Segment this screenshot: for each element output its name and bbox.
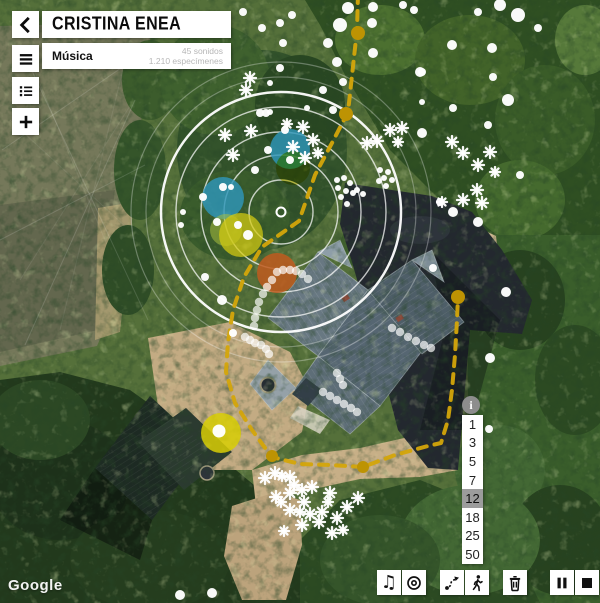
back-button[interactable] [12, 11, 39, 38]
scale-value-18[interactable]: 18 [462, 508, 483, 527]
stop-button[interactable] [575, 570, 599, 595]
walking-person-icon [467, 573, 487, 593]
app: CRISTINA ENEA Música 45 sonidos 1.210 es… [0, 0, 600, 603]
walk-button[interactable] [465, 570, 489, 595]
route-icon [442, 573, 462, 593]
specimen-count: 1.210 especímenes [149, 56, 223, 66]
scale-value-12[interactable]: 12 [462, 489, 483, 508]
chevron-left-icon [15, 14, 37, 36]
scale-value-5[interactable]: 5 [462, 452, 483, 471]
scale-value-3[interactable]: 3 [462, 434, 483, 453]
zoom-scale: 135712182550 [462, 415, 483, 564]
pause-button[interactable] [550, 570, 574, 595]
scale-value-50[interactable]: 50 [462, 545, 483, 564]
sound-count: 45 sonidos [182, 46, 223, 56]
add-button[interactable] [12, 108, 39, 135]
info-button[interactable]: i [462, 396, 480, 414]
target-icon [404, 573, 424, 593]
layer-name: Música [52, 49, 93, 63]
plus-icon [16, 112, 36, 132]
music-button[interactable]: ♫ [377, 570, 401, 595]
target-button[interactable] [402, 570, 426, 595]
satellite-map[interactable] [0, 0, 600, 603]
scale-value-1[interactable]: 1 [462, 415, 483, 434]
trash-button[interactable] [503, 570, 527, 595]
place-title-panel: CRISTINA ENEA [42, 11, 231, 38]
pause-icon [552, 573, 572, 593]
hamburger-icon [16, 49, 36, 69]
route-button[interactable] [440, 570, 464, 595]
page-title: CRISTINA ENEA [52, 14, 181, 35]
info-icon: i [469, 398, 472, 413]
layer-info-panel: Música 45 sonidos 1.210 especímenes [42, 43, 231, 69]
scale-value-7[interactable]: 7 [462, 471, 483, 490]
list-icon [16, 81, 36, 101]
layer-stats: 45 sonidos 1.210 especímenes [149, 46, 223, 66]
music-note-icon: ♫ [381, 574, 397, 592]
menu-button[interactable] [12, 45, 39, 72]
list-button[interactable] [12, 77, 39, 104]
scale-value-25[interactable]: 25 [462, 527, 483, 546]
trash-icon [505, 573, 525, 593]
stop-icon [577, 573, 597, 593]
google-watermark: Google [8, 577, 63, 594]
